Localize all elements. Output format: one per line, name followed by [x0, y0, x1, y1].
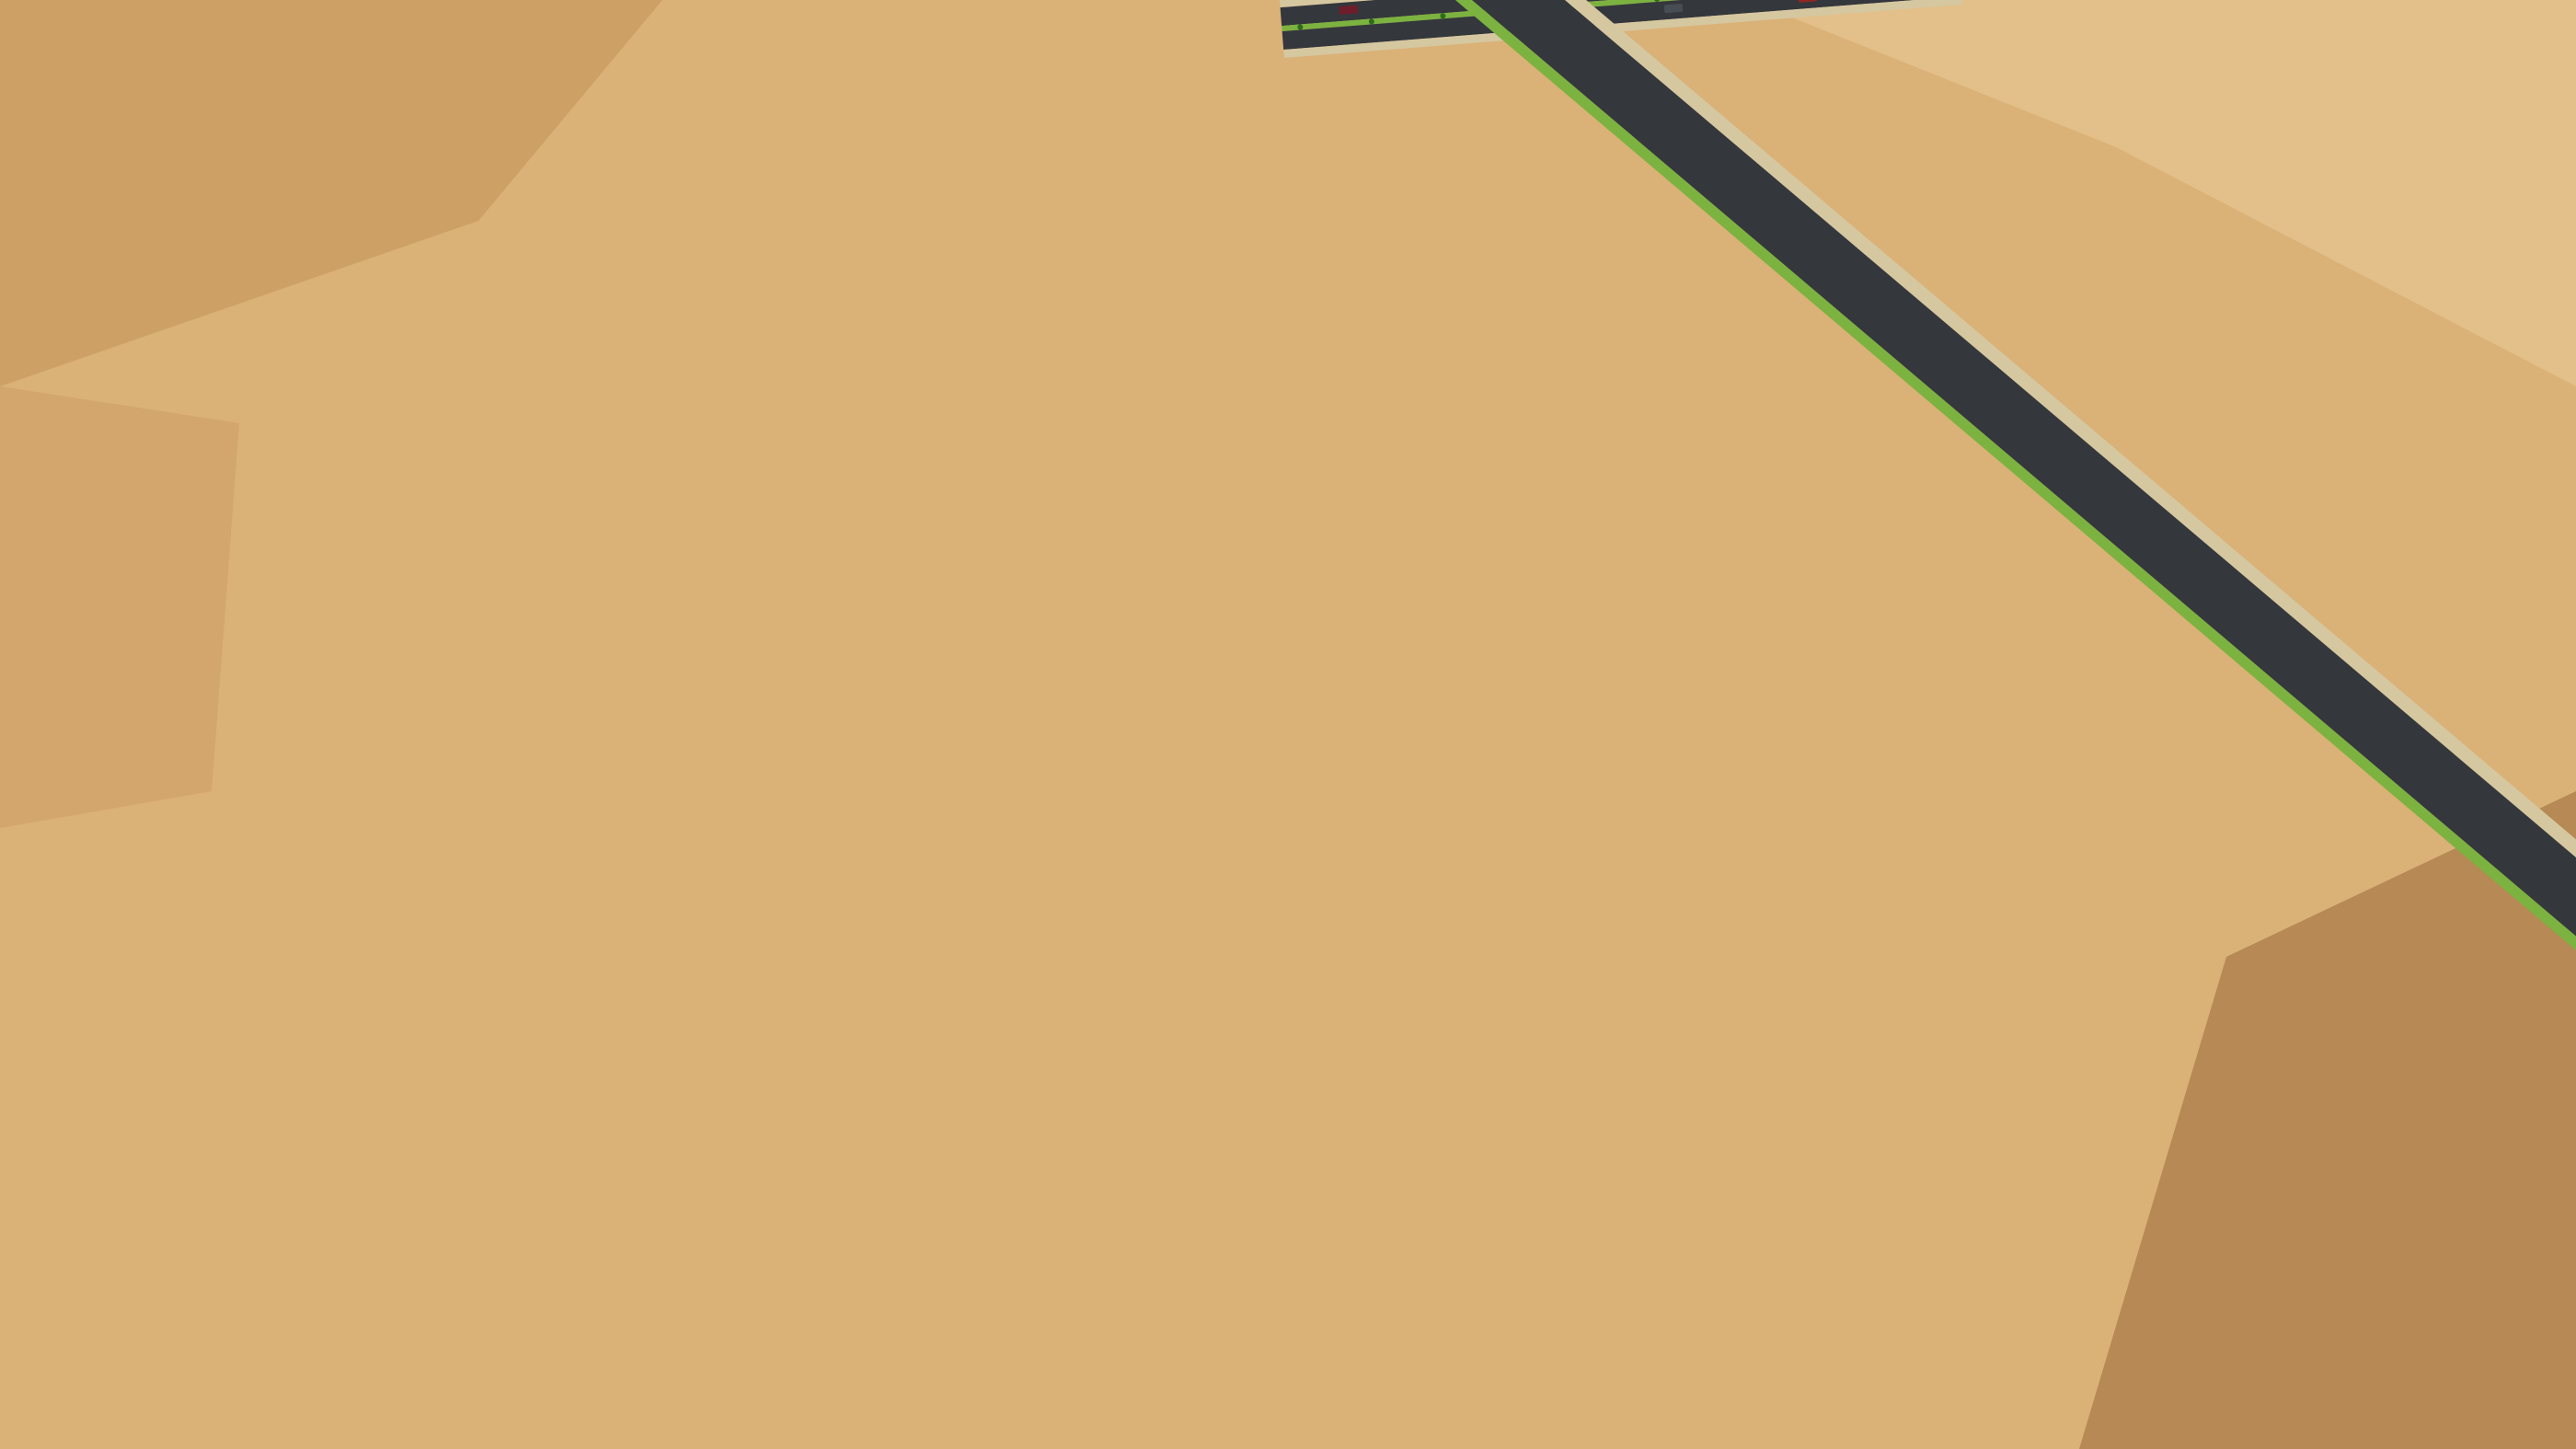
car	[1340, 6, 1359, 16]
desert-tone	[0, 386, 239, 828]
aerial-architectural-render	[0, 0, 2576, 1449]
car	[1664, 4, 1684, 14]
